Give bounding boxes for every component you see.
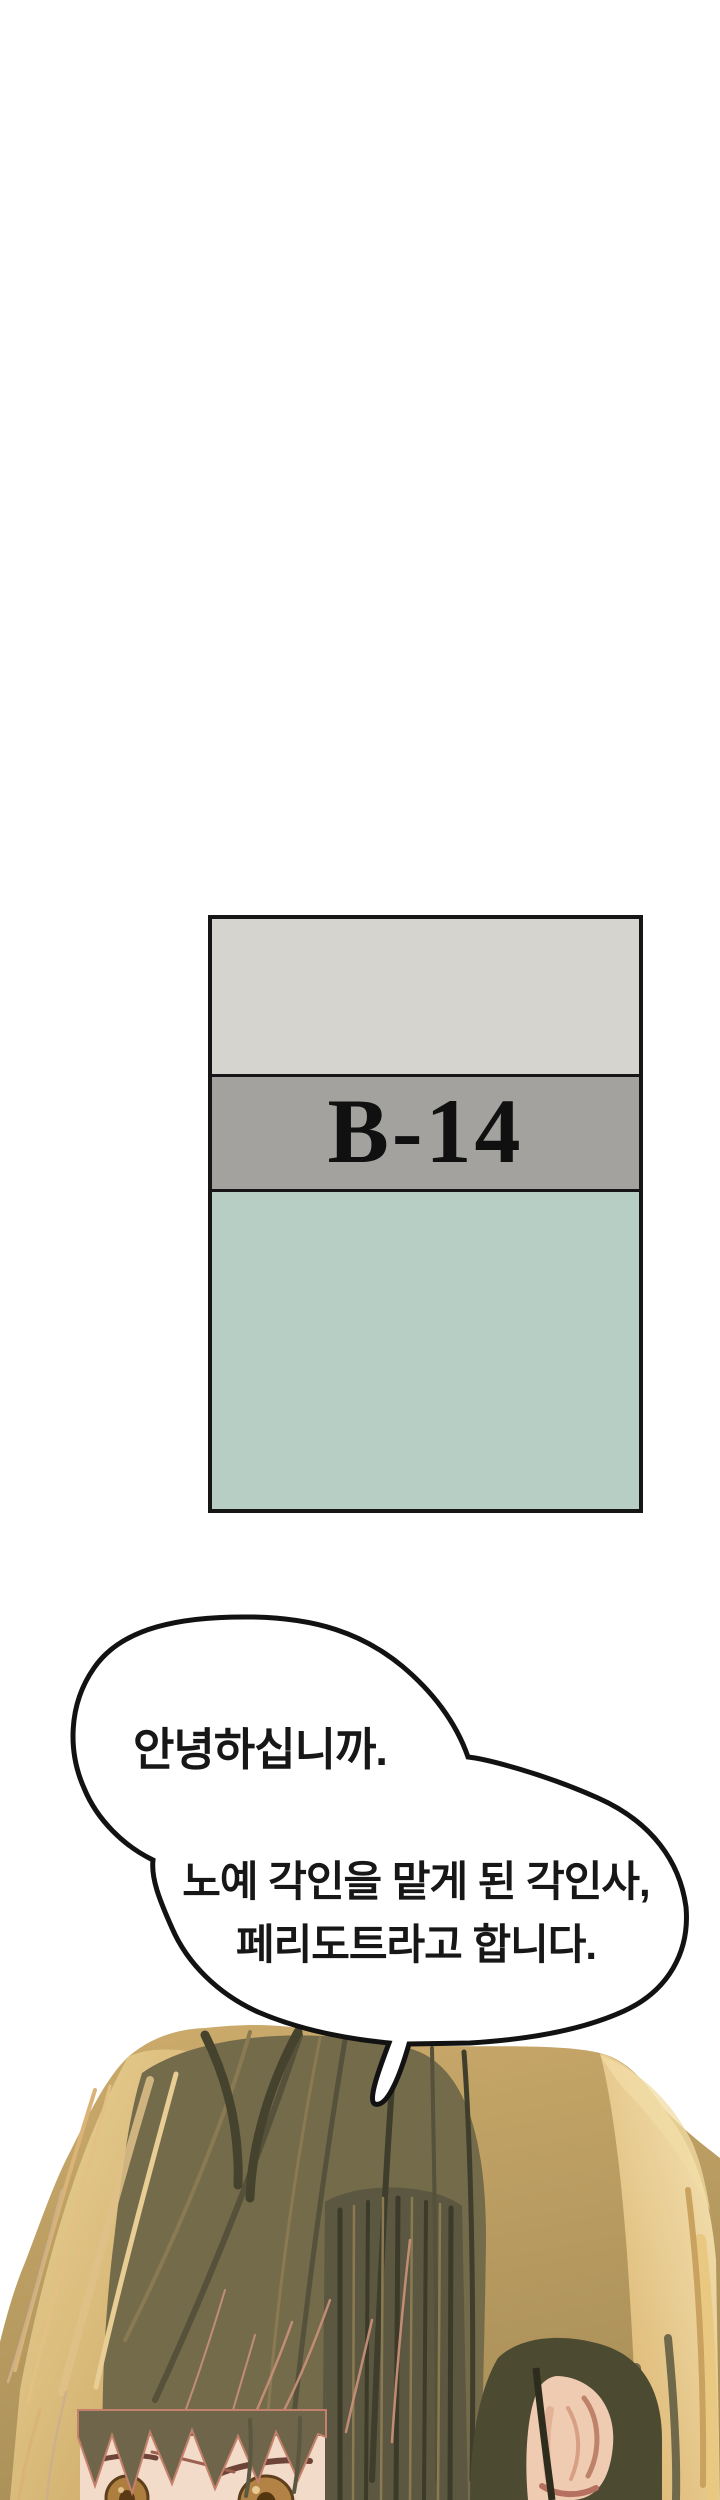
speech-text-intro: 노예 각인을 맡게 된 각인사, 페리도트라고 합니다.	[110, 1850, 720, 1976]
room-sign: B-14	[208, 915, 643, 1513]
sign-label-band: B-14	[212, 1074, 639, 1192]
intro-line-2: 페리도트라고 합니다.	[110, 1913, 720, 1976]
sign-bottom-band	[212, 1192, 639, 1509]
speech-bubble	[0, 1560, 720, 2120]
sign-top-band	[212, 919, 639, 1074]
ear	[470, 2338, 662, 2500]
speech-text-greeting: 안녕하십니까.	[133, 1724, 387, 1776]
sign-label: B-14	[328, 1085, 524, 1177]
intro-line-1: 노예 각인을 맡게 된 각인사,	[110, 1850, 720, 1913]
comic-page: B-14	[0, 0, 720, 2500]
